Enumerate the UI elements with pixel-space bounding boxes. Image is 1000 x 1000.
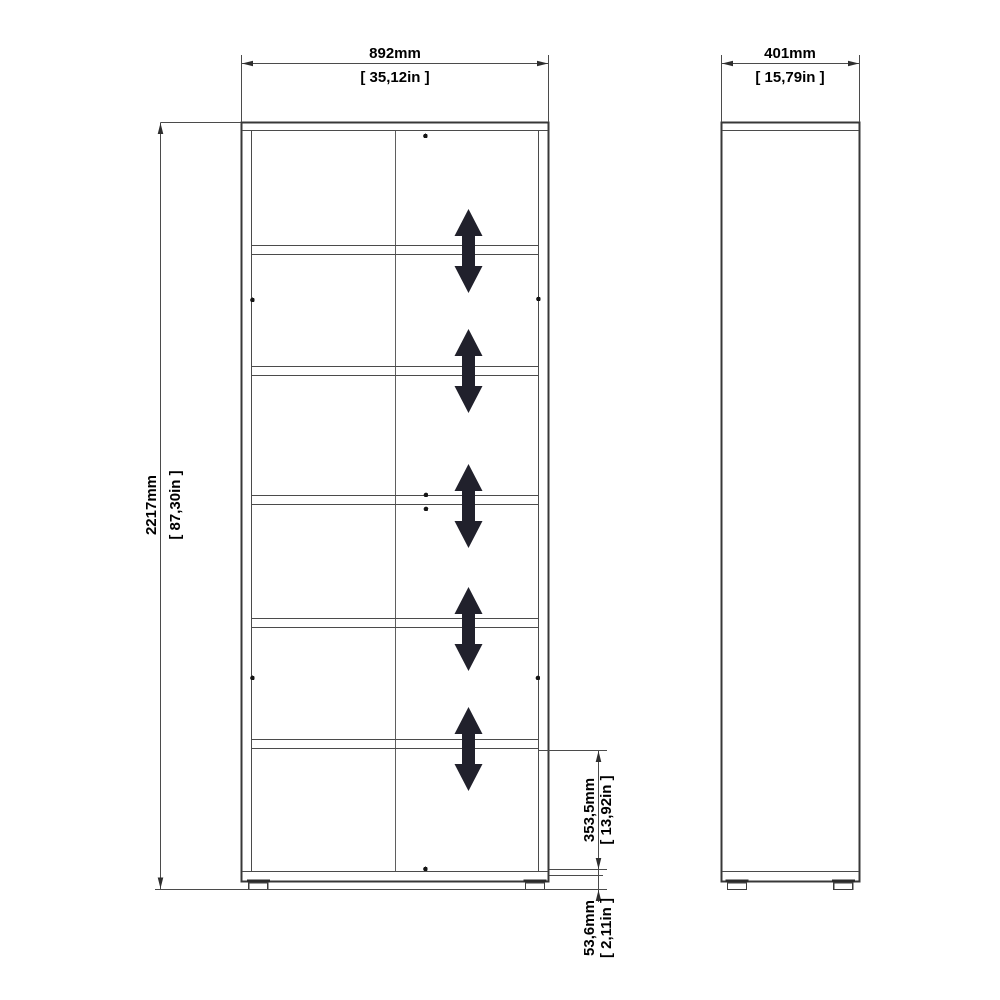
fitting-dot [536,297,541,302]
width-mm-label: 892mm [369,45,421,62]
front-left-foot [247,880,270,890]
bookcase-dimension-drawing: 892mm [ 35,12in ] 401mm [ 15,79in ] 2217… [0,0,1000,1000]
technical-drawing-page: 892mm [ 35,12in ] 401mm [ 15,79in ] 2217… [0,0,1000,1000]
front-view [242,123,549,890]
fitting-dot [423,867,428,872]
fitting-dot [250,676,255,681]
fitting-dot [250,298,255,303]
dimension-arrowhead [596,751,602,762]
side-back-foot [832,880,855,890]
height-mm-label: 2217mm [143,475,160,535]
dimension-arrowhead [242,61,253,67]
fitting-dot [424,507,429,512]
dimension-arrowhead [158,878,164,889]
dimension-arrowhead [537,61,548,67]
dimension-depth: 401mm [ 15,79in ] [722,45,860,122]
fitting-dot [423,134,428,139]
foot-height-inches-label: [ 2,11in ] [598,898,615,958]
shelf-spacing-inches-label: [ 13,92in ] [598,775,615,844]
dimension-arrowhead [596,858,602,869]
adjustable-shelf-arrow-icon [455,587,483,671]
dimension-shelf-spacing: 353,5mm [ 13,92in ] [539,751,615,876]
side-outline [722,123,860,882]
adjustable-shelf-arrow-icon [455,329,483,413]
dimension-width: 892mm [ 35,12in ] [242,45,549,122]
adjustable-shelf-arrow-icon [455,209,483,293]
dimension-foot-height: 53,6mm [ 2,11in ] [155,870,615,959]
dimension-arrowhead [158,123,164,134]
depth-mm-label: 401mm [764,45,816,62]
front-right-foot [524,880,547,890]
height-inches-label: [ 87,30in ] [167,470,184,539]
width-inches-label: [ 35,12in ] [360,69,429,86]
fitting-dot [424,493,429,498]
shelf-spacing-mm-label: 353,5mm [581,778,598,842]
fitting-dot [536,676,541,681]
side-view [722,123,860,890]
depth-inches-label: [ 15,79in ] [755,69,824,86]
dimension-height: 2217mm [ 87,30in ] [143,123,241,890]
adjustable-shelf-arrows [455,209,483,791]
dimension-arrowhead [722,61,733,67]
side-front-foot [726,880,749,890]
dimension-arrowhead [848,61,859,67]
adjustable-shelf-arrow-icon [455,464,483,548]
foot-height-mm-label: 53,6mm [581,900,598,956]
